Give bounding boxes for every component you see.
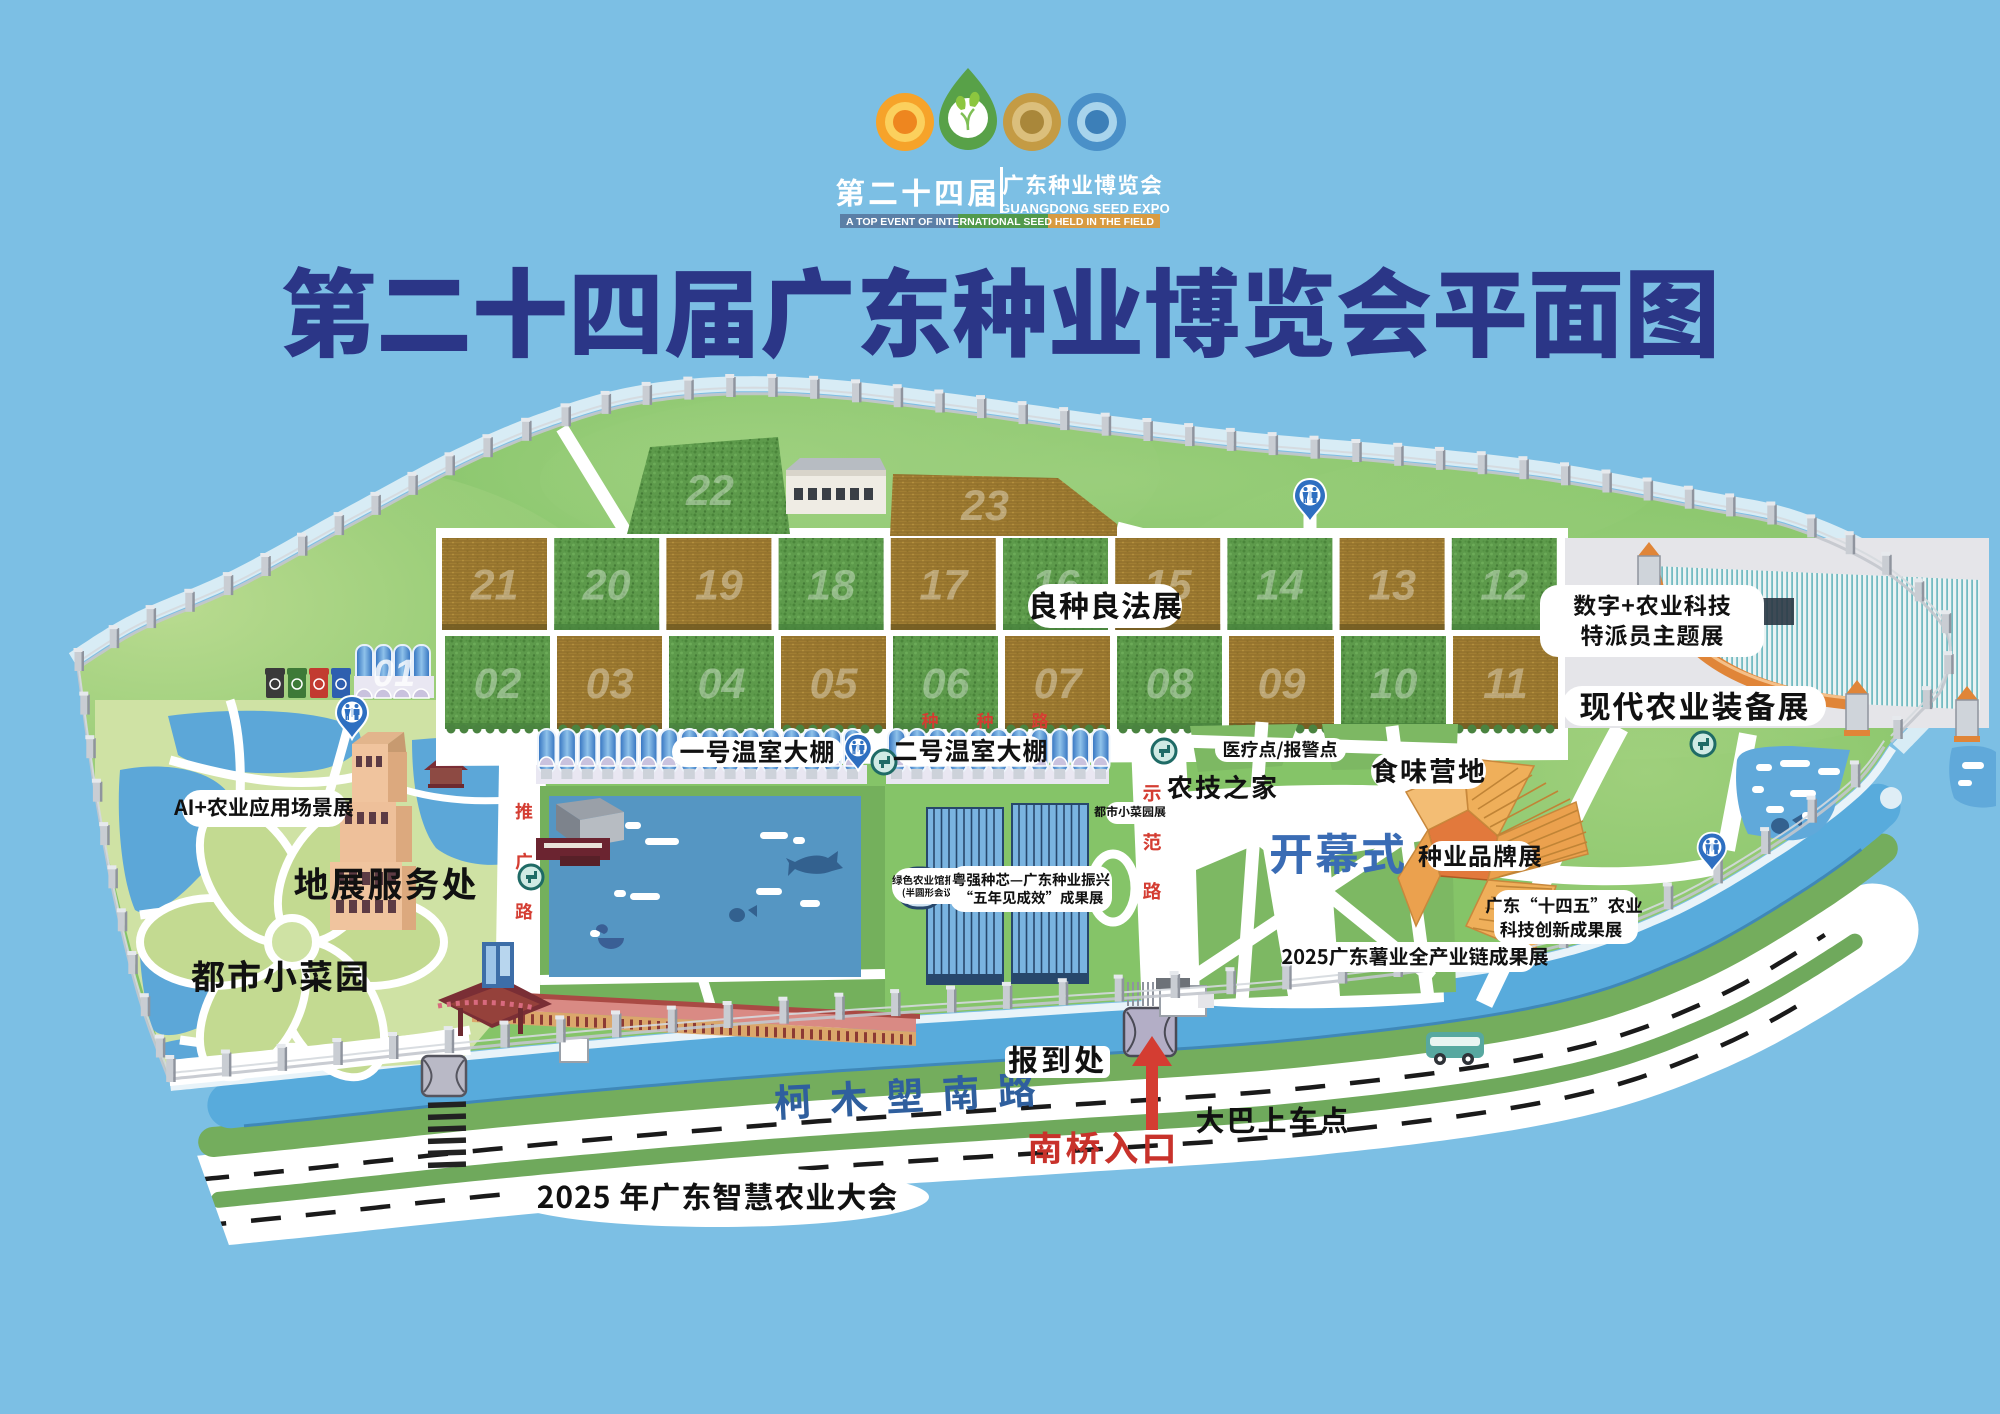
svg-text:03: 03	[586, 660, 634, 708]
svg-text:18: 18	[807, 562, 855, 610]
svg-text:19: 19	[695, 562, 743, 610]
svg-text:01: 01	[373, 653, 415, 695]
svg-text:12: 12	[1480, 562, 1528, 610]
svg-text:A TOP EVENT OF INTERNATIONAL S: A TOP EVENT OF INTERNATIONAL SEED HELD I…	[846, 216, 1154, 228]
svg-text:11: 11	[1483, 660, 1528, 708]
svg-text:08: 08	[1146, 660, 1194, 708]
svg-text:04: 04	[698, 660, 746, 708]
svg-text:GUANGDONG SEED EXPO: GUANGDONG SEED EXPO	[1000, 201, 1170, 216]
svg-text:23: 23	[960, 482, 1009, 530]
svg-text:06: 06	[922, 660, 971, 708]
svg-text:07: 07	[1034, 660, 1084, 708]
svg-text:17: 17	[919, 562, 969, 610]
svg-text:10: 10	[1370, 660, 1418, 708]
svg-text:02: 02	[474, 660, 522, 708]
svg-text:21: 21	[470, 562, 519, 610]
svg-text:05: 05	[810, 660, 859, 708]
svg-text:22: 22	[685, 467, 734, 515]
svg-text:20: 20	[582, 562, 631, 610]
svg-text:14: 14	[1256, 562, 1304, 610]
svg-text:13: 13	[1368, 562, 1416, 610]
svg-text:09: 09	[1258, 660, 1306, 708]
